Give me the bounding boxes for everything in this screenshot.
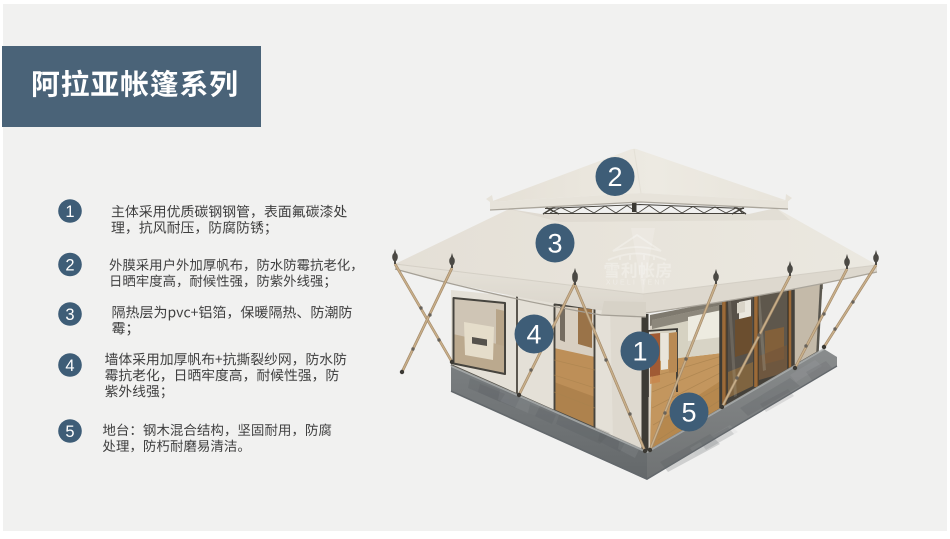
svg-text:1: 1 [65,203,74,221]
svg-text:3: 3 [65,306,74,324]
svg-text:2: 2 [65,256,74,274]
svg-text:5: 5 [681,398,696,428]
svg-text:1: 1 [632,337,647,367]
svg-text:2: 2 [607,162,622,192]
svg-text:4: 4 [65,357,74,375]
svg-text:XUELI TENT: XUELI TENT [606,280,668,287]
svg-text:4: 4 [526,320,541,350]
svg-text:3: 3 [547,229,562,259]
svg-text:5: 5 [65,423,74,441]
